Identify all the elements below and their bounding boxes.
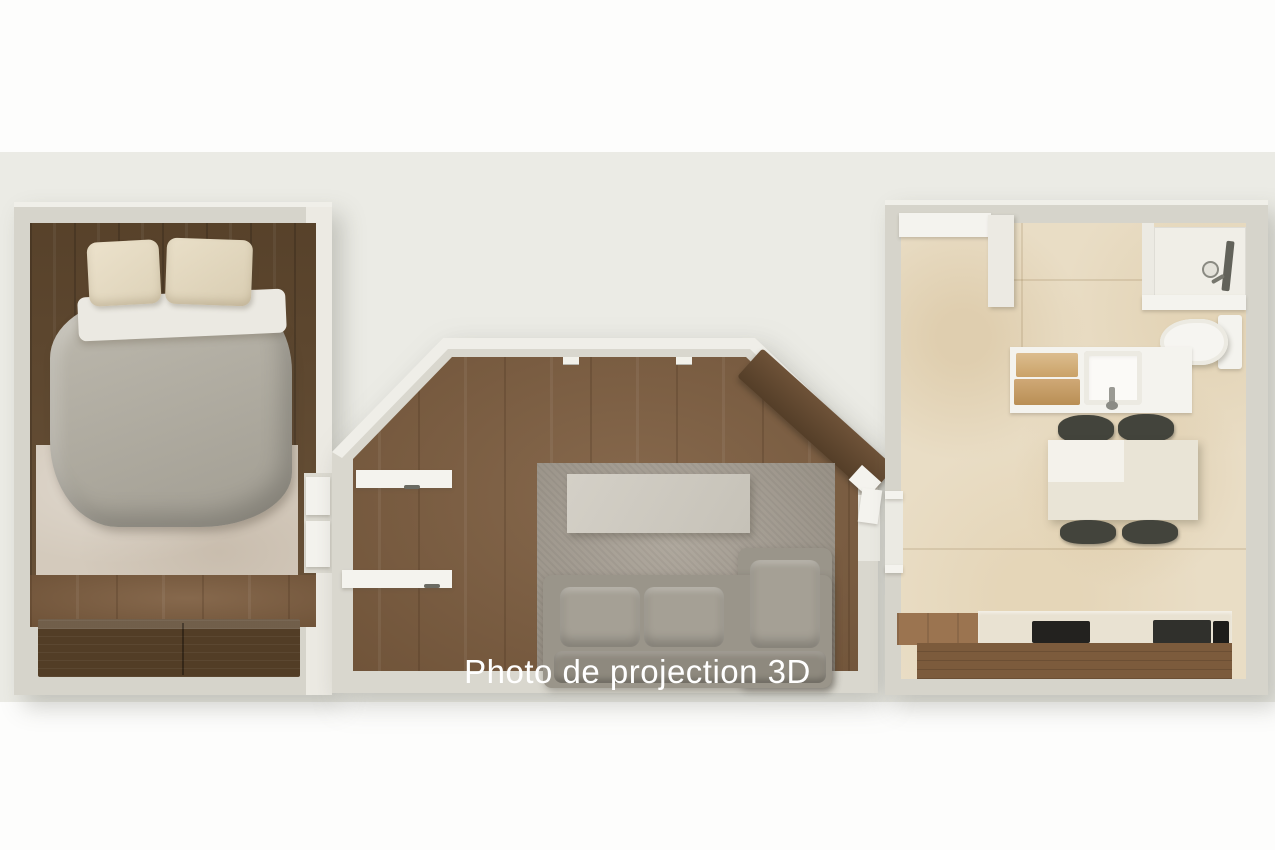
towel-stack-bottom: [1014, 379, 1080, 405]
sink-faucet-base: [1106, 401, 1118, 410]
sofa-cushion-2: [644, 587, 724, 647]
kitchen-sink-unit: [1153, 620, 1211, 644]
kitchen-cabinet-left-top: [897, 613, 978, 645]
shower-shelf: [1142, 295, 1246, 310]
dining-chair-bottom-right: [1122, 520, 1178, 544]
dining-chair-bottom-left: [1060, 520, 1116, 544]
kitchen-cabinet-front: [917, 643, 1232, 679]
kitchen-doorway: [885, 497, 903, 567]
dining-chair-top-left: [1058, 415, 1114, 443]
bedroom-door-leaf-lower: [306, 521, 330, 567]
living-room: [332, 335, 880, 695]
bedroom: [14, 202, 332, 695]
lower-alcove-shelf: [342, 570, 452, 588]
bed-pillow-right: [165, 238, 253, 307]
upper-shelf-handle: [404, 485, 420, 489]
dresser-divider: [182, 623, 184, 675]
floor-plan-render: Photo de projection 3D: [0, 0, 1275, 850]
sofa-cushion-3: [750, 560, 820, 648]
bedroom-dresser: [38, 619, 300, 677]
dining-table: [1048, 440, 1198, 520]
bedroom-door-leaf-upper: [306, 477, 330, 515]
shower-drain: [1202, 261, 1219, 278]
caption-text: Photo de projection 3D: [464, 653, 811, 691]
sofa-cushion-1: [560, 587, 640, 647]
towel-stack-top: [1016, 353, 1078, 377]
sideboard: [567, 474, 750, 533]
cooktop: [1032, 621, 1090, 643]
kitchen-bathroom: [885, 200, 1268, 695]
dining-chair-top-right: [1118, 414, 1174, 442]
lower-shelf-handle: [424, 584, 440, 588]
kitchen-appliance-small: [1213, 621, 1229, 645]
wall-mark-right: [676, 357, 692, 365]
bathroom-partition-vertical: [988, 215, 1014, 307]
kitchen-door-jamb-bottom: [885, 565, 903, 573]
kitchen-door-jamb-top: [885, 491, 903, 499]
bed-pillow-left: [86, 239, 161, 307]
upper-alcove-shelf: [356, 470, 452, 488]
dining-table-highlight: [1048, 440, 1124, 482]
entry-wardrobe: [899, 213, 991, 237]
wall-mark-left: [563, 357, 579, 365]
tile-seam-h1: [901, 548, 1246, 550]
